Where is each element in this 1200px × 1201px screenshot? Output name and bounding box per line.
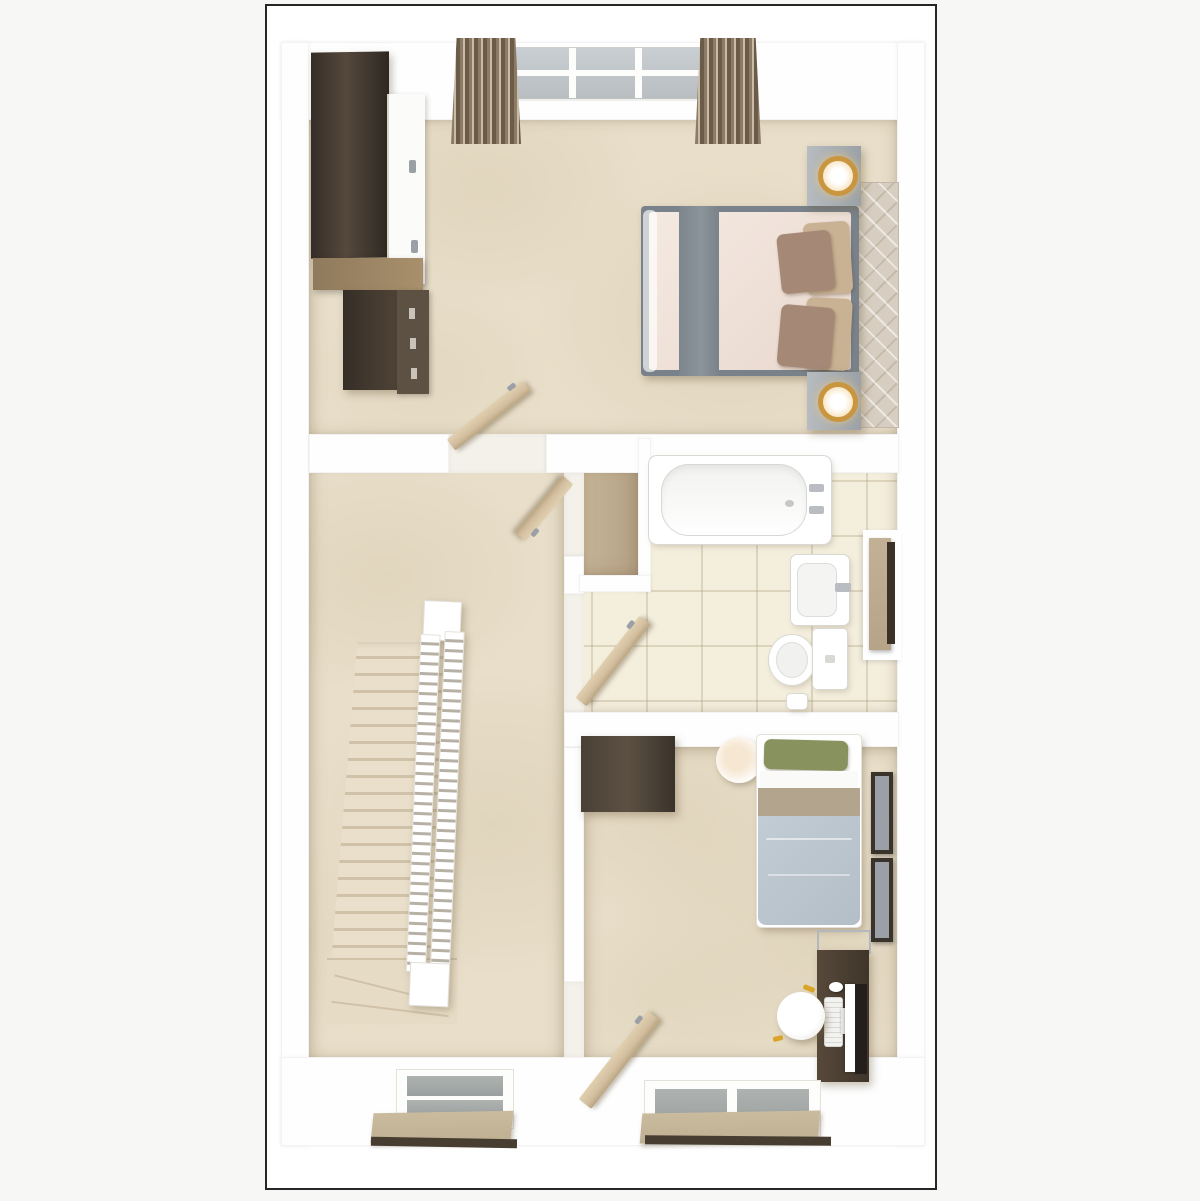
toilet-brush: [787, 694, 807, 709]
wardrobe-handle: [411, 240, 418, 253]
flush-button: [825, 655, 835, 663]
radiator-edge: [887, 542, 895, 644]
toilet-cistern: [813, 629, 847, 689]
window-double-bedroom: [511, 48, 701, 98]
single-bed: [757, 735, 861, 927]
wardrobe-top: [311, 51, 389, 258]
blind-bar: [371, 1137, 517, 1149]
drawer-handle: [409, 308, 415, 319]
washbasin: [791, 555, 849, 625]
duvet-fold: [643, 210, 657, 372]
sheet: [760, 771, 858, 789]
mouse-icon: [829, 982, 843, 992]
pillow-mauve: [776, 229, 836, 294]
doorway-single-bedroom: [564, 982, 584, 1057]
curtain-right: [695, 38, 761, 144]
toilet-seat: [776, 642, 808, 678]
curtain-left: [451, 38, 521, 144]
pendant-lamp-icon: [716, 737, 762, 783]
picture-frame: [871, 858, 893, 942]
pillow-green: [764, 739, 849, 771]
floor-plan-page: [0, 0, 1200, 1201]
bath-tap-icon: [809, 484, 824, 492]
window-transom: [511, 70, 701, 76]
bed-runner: [679, 206, 719, 376]
exterior-wall-left: [281, 42, 309, 1146]
nightstand-bottom: [807, 372, 861, 430]
table-lamp-icon: [818, 156, 858, 196]
bathtub-drain: [785, 500, 794, 507]
exterior-wall-right: [897, 42, 925, 1146]
blind-bar: [645, 1135, 831, 1146]
duvet-fold-line: [768, 874, 850, 876]
wall-bedroom1-divider-left: [309, 434, 449, 473]
stool: [777, 992, 825, 1040]
monitor-back: [855, 984, 867, 1074]
toilet-bowl: [769, 635, 815, 685]
basin-tap-icon: [835, 583, 851, 592]
room-cupboard-floor: [579, 460, 638, 575]
side-unit: [581, 736, 675, 812]
newel-post-bottom: [409, 963, 449, 1007]
wall-cupboard-bottom: [579, 575, 651, 592]
duvet-fold-line: [766, 838, 852, 840]
chest-of-drawers-top: [343, 290, 397, 390]
chest-of-drawers-front: [397, 290, 429, 394]
double-bed: [641, 206, 859, 376]
drawer-handle: [411, 368, 417, 379]
drawer-handle: [410, 338, 416, 349]
keyboard-icon: [825, 998, 842, 1046]
window-sill-shadow: [511, 98, 701, 101]
blanket-fold: [758, 788, 860, 817]
wardrobe-handle: [409, 160, 416, 173]
bathtub-basin: [661, 464, 807, 536]
table-lamp-icon: [818, 382, 858, 422]
basin-bowl: [797, 563, 837, 617]
bath-tap-icon: [809, 506, 824, 514]
bathtub: [649, 456, 831, 544]
floor-plan-render: [265, 4, 937, 1190]
pillow-mauve: [776, 304, 835, 370]
monitor-screen: [845, 984, 855, 1072]
window-pane: [407, 1076, 503, 1096]
picture-frame: [871, 772, 893, 854]
nightstand-top: [807, 146, 861, 206]
single-duvet: [758, 816, 860, 925]
wardrobe-base: [313, 258, 423, 290]
wardrobe-doors: [387, 94, 425, 284]
